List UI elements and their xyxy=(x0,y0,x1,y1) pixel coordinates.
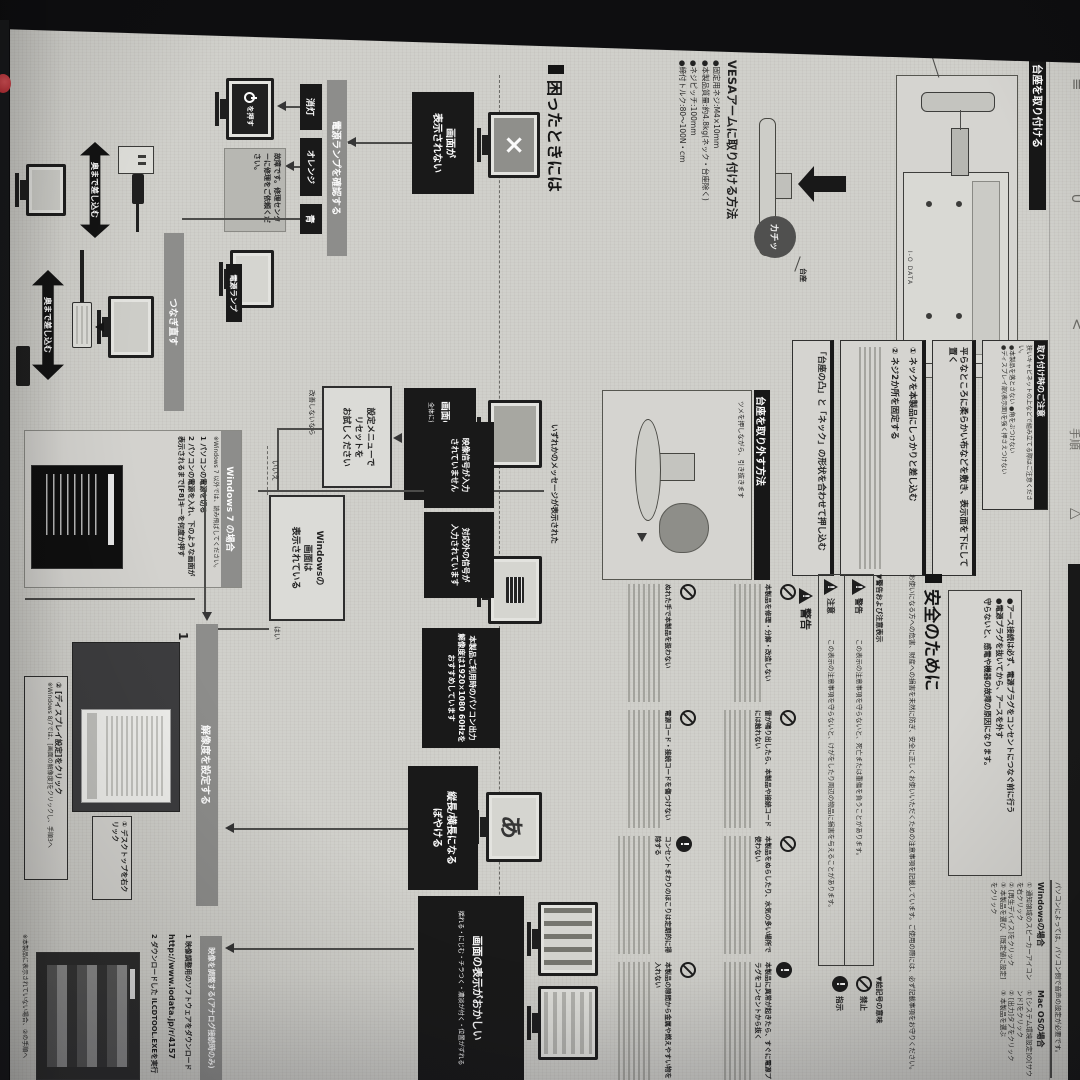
warning-item: 本製品の隙間から金属や燃えやすい物を入れない xyxy=(600,962,696,1080)
no-dashed-line xyxy=(267,446,268,495)
color-problem-monitor-icon xyxy=(488,400,542,468)
warning-item: 本製品をぬらしたり、水気の多い場所で使わない xyxy=(706,836,796,954)
remove-neck xyxy=(657,453,695,481)
attach-caution-intro: 狭いキャビネットの上などで組み立てる際はご注意ください。 xyxy=(1016,341,1034,509)
desktop-screenshot xyxy=(72,642,180,812)
audio-windows-column: Windowsの場合 ① 通知領域のスピーカーアイコンを右クリック ② [再生デ… xyxy=(989,882,1046,984)
wavy-monitor-icon xyxy=(538,902,598,976)
warning-item: 電源コード・接続コードを傷つけない xyxy=(600,710,696,828)
attach-step-1: 平らなところに柔らかい布などを敷き、表示面を下にして置く xyxy=(932,340,976,576)
no-display-monitor-icon: × xyxy=(488,112,540,178)
display-odd-title: 画面の表示がおかしい xyxy=(470,936,485,1041)
caution-word: 注意 xyxy=(826,598,837,614)
attach-step-3: ② ネジ2か所を固定する xyxy=(887,347,899,569)
press-label: を押す xyxy=(245,106,255,127)
vesa-neck-stub xyxy=(774,173,792,199)
monitor-rear: I-O DATA xyxy=(903,172,1009,364)
warning-triangle-icon xyxy=(852,579,866,595)
power-cable-figure: 奥まで差し込む xyxy=(12,140,158,240)
rear-monitor-small-icon xyxy=(26,164,66,216)
flow-start-box: 画面が 表示されない xyxy=(412,92,474,194)
lamp-orange-box: オレンジ xyxy=(300,138,322,196)
hand-icon xyxy=(659,503,709,553)
rear-monitor-small-icon xyxy=(108,296,154,358)
aspect-glyph: あ xyxy=(492,798,536,856)
arrow-shaft xyxy=(812,176,846,192)
photographed-manual-page: ≡ ∪ < 手順 △ 台座を取り付ける I-O DATA ネック 取り付け時のご… xyxy=(0,0,1080,1080)
vesa-header: VESAアームに取り付ける方法 xyxy=(724,60,740,300)
outlet-icon xyxy=(118,146,154,174)
attach-step-2-3: ① ネックを本製品にしっかりと差し込む ② ネジ2か所を固定する xyxy=(840,340,926,576)
step-number: 1 xyxy=(176,632,190,640)
warning-section-label: 警告 xyxy=(798,588,814,630)
attach-step-4: 「台座の凸」と「ネック」の形状を合わせて押し込む xyxy=(792,340,834,576)
audio-note: パソコンによっては、パソコン側で音声の設定が必要です。 xyxy=(1054,882,1064,1078)
no-signal-box: 映像信号が入力 されていません xyxy=(424,422,494,508)
aspect-monitor-icon: あ xyxy=(486,792,542,862)
header-square-icon xyxy=(548,65,565,74)
windows7-step1: 1 パソコンの電源を切る xyxy=(197,431,209,587)
audio-section-bar xyxy=(1068,564,1080,1080)
warning-section-word: 警告 xyxy=(798,608,814,630)
yes-label: はい xyxy=(272,626,282,640)
edge-angle-icon: < xyxy=(1068,318,1080,331)
power-icon xyxy=(245,92,256,103)
boot-menu-screenshot xyxy=(31,465,123,569)
adjust-step2: 2 ダウンロードした ILCDTOOL.EXEを実行 xyxy=(150,934,160,1080)
warning-item: ! 本製品に異常が起きたら、すぐに電源プラグをコンセントから抜く xyxy=(706,962,796,1080)
windows-shown-box: Windowsの 画面は 表示されている xyxy=(269,495,345,621)
adjust-note: ※本製品に表示されていない場合、②の手順へ xyxy=(21,934,30,1080)
warning-triangle-icon xyxy=(799,588,813,604)
edge-list-icon: ≡ xyxy=(1068,78,1080,91)
symbol-must-row: ! 指示 xyxy=(832,976,848,1011)
symbols-title: ▼絵記号の意味 xyxy=(874,976,884,1023)
manual-page: ≡ ∪ < 手順 △ 台座を取り付ける I-O DATA ネック 取り付け時のご… xyxy=(10,28,1080,1080)
striped-monitor-icon xyxy=(538,986,598,1060)
symbol-prohibit-row: 禁止 xyxy=(856,976,872,1011)
troubleshoot-header: 困ったときには xyxy=(544,65,568,192)
adjust-step1: 1 映像調整用のソフトウェアをダウンロード xyxy=(184,934,194,1080)
reconnect-bar: つなぎ直す xyxy=(164,233,184,411)
arrow-head-icon xyxy=(798,166,814,202)
stand-attach-header: 台座を取り付ける xyxy=(1029,58,1046,210)
lamp-callout: 電源ランプ xyxy=(226,264,242,322)
hdmi-plug-icon xyxy=(16,346,30,386)
display-odd-sub: 揺れる・にじむ・チラつく・濃淡が付く・位置がずれる xyxy=(457,911,466,1066)
plug-icon xyxy=(132,174,144,204)
neck-part xyxy=(951,128,969,176)
click-sound-bubble: カチッ xyxy=(754,216,796,258)
remove-note: ツメを押しながら、引き抜きます xyxy=(737,401,745,505)
windows7-section: Windows 7 の場合 ※Windows 7 以外では、読み飛ばしてください… xyxy=(24,430,242,588)
safety-legend-title: ▼警告および注意表示 xyxy=(874,574,884,642)
audio-mac-steps: ① [システム環境設定]の[サウンド]をクリック ② [出力]タブをクリック ③… xyxy=(998,990,1033,1080)
safety-header-label: 安全のために xyxy=(921,589,946,691)
caution-triangle-icon xyxy=(824,579,838,595)
lamp-off-box: 消灯 xyxy=(300,84,322,130)
lamp-blue-box: 青 xyxy=(300,204,322,234)
display-odd-box: 画面の表示がおかしい 揺れる・にじむ・チラつく・濃淡が付く・位置がずれる xyxy=(418,896,524,1080)
stand-attach-figure: I-O DATA xyxy=(896,75,1018,378)
fine-print-lines xyxy=(859,347,881,569)
audio-windows-steps: ① 通知領域のスピーカーアイコンを右クリック ② [再生デバイス]をクリック ③… xyxy=(989,882,1033,984)
video-cable-figure: 奥まで差し込む xyxy=(12,250,158,408)
warning-item: 本製品を修理・分解・改造しない xyxy=(706,584,796,702)
edge-warning-icon: △ xyxy=(1068,508,1080,520)
vesa-specs: ●固定用ネジ:M4×10mm ●本製品質量:約4.8kg(ネック・台座除く) ●… xyxy=(677,60,722,310)
no-label: いいえ xyxy=(270,460,280,481)
attach-caution-box: 取り付け時のご注意 狭いキャビネットの上などで組み立てる際はご注意ください。 ●… xyxy=(982,340,1048,510)
safety-legend-table: 警告 この表示の注意事項を守らないと、死亡または重傷を負うことがあります。 注意… xyxy=(818,574,874,966)
troubleshoot-header-label: 困ったときには xyxy=(544,80,568,192)
audio-mac-column: Mac OSの場合 ① [システム環境設定]の[サウンド]をクリック ② [出力… xyxy=(998,990,1046,1080)
aspect-problem-box: 縦長/横長になる ぼやける xyxy=(408,766,478,890)
attach-caution-title: 取り付け時のご注意 xyxy=(1034,341,1047,509)
attach-step-2: ① ネックを本製品にしっかりと差し込む xyxy=(905,347,917,569)
brand-logo: I-O DATA xyxy=(906,173,913,363)
windows7-note: ※Windows 7 以外では、読み飛ばしてください。 xyxy=(209,431,221,587)
adjust-video-bar: 映像を調整する(アナログ接続時のみ) xyxy=(200,936,222,1080)
audio-windows-title: Windowsの場合 xyxy=(1035,882,1046,984)
flow-trunk-line xyxy=(258,490,544,492)
warning-word: 警告 xyxy=(854,598,865,614)
stand-remove-figure: ツメを押しながら、引き抜きます xyxy=(602,390,752,580)
adjust-url: http://www.iodata.jp/r/4157 xyxy=(167,934,176,1080)
remove-base xyxy=(635,419,661,521)
set-resolution-bar: 解像度を設定する xyxy=(196,624,218,906)
warning-desc: この表示の注意事項を守らないと、死亡または重傷を負うことがあります。 xyxy=(855,635,864,965)
windows7-title: Windows 7 の場合 xyxy=(221,431,241,587)
warning-item: ぬれた手で本製品を扱わない xyxy=(600,584,696,702)
power-button-monitor-icon: を押す xyxy=(226,78,274,140)
warning-item: 雷が鳴り出したら、本製品や接続コードには触れない xyxy=(706,710,796,828)
message-shown-label: いずれかのメッセージが表示された xyxy=(549,424,560,664)
edge-step-label: 手順 xyxy=(1067,428,1080,450)
callout-display-settings: ② [ディスプレイ設定]をクリック ※Windows 8/7では、[画面の解像度… xyxy=(24,676,68,880)
stand-remove-header: 台座を取り外す方法 xyxy=(754,390,770,580)
safety-intro: お使いになる方への危害、財産への損害を未然に防ぎ、安全に正しくお使いいただくため… xyxy=(907,574,916,1074)
push-in-ribbon: 奥まで差し込む xyxy=(80,142,110,238)
vesa-figure: カチッ 台座 xyxy=(744,88,848,308)
mandatory-icon: ! xyxy=(832,976,848,992)
message-monitor-icon xyxy=(488,556,542,624)
base-part xyxy=(921,92,995,112)
safety-header: 安全のために xyxy=(921,574,946,691)
windows7-step2: 2 パソコンの電源を入れ、下のような画面が表示されるまで[F8]キーを何度か押す xyxy=(174,431,197,587)
mandatory-label: 指示 xyxy=(835,996,846,1011)
dvi-connector-icon xyxy=(72,302,92,348)
prohibit-icon xyxy=(856,976,872,992)
prohibit-label: 禁止 xyxy=(859,996,870,1011)
caution-desc: この表示の注意事項を守らないと、けがをしたり周辺の物品に損害を与えることがありま… xyxy=(827,635,836,965)
reset-menu-box: 設定メニューで リセットを お試しください xyxy=(322,386,392,488)
daiza-label: 台座 xyxy=(798,268,808,282)
out-of-range-box: 対応外の信号が 入力されています xyxy=(424,512,494,598)
audio-mac-title: Mac OSの場合 xyxy=(1035,990,1046,1080)
warning-items-grid: 本製品を修理・分解・改造しない 雷が鳴り出したら、本製品や接続コードには触れない… xyxy=(600,584,796,1080)
callout-right-click: ① デスクトップを右クリック xyxy=(92,816,132,900)
check-lamp-bar: 電源ランプを確認する xyxy=(327,80,347,256)
edge-plug-icon: ∪ xyxy=(1068,193,1080,204)
recommend-resolution-box: 本製品ご利用時のパソコン出力解像度は1920×1080 60Hzをおすすめしてい… xyxy=(422,628,500,748)
photo-left-edge xyxy=(0,20,9,1080)
earth-warning-box: ●アース接続は必ず、電源プラグをコンセントにつなぐ前に行う ●電源プラグを抜いて… xyxy=(948,590,1022,876)
attach-caution-bullets: ●本製品を落とさない ●角をぶつけない ●ディスプレイ部(表示面)を強く押さえつ… xyxy=(998,341,1016,509)
adjust-tool-screenshot xyxy=(36,952,140,1080)
warning-item: ! コンセントまわりのほこりは定期的に掃除する xyxy=(600,836,696,954)
push-in-ribbon: 奥まで差し込む xyxy=(32,270,64,380)
callout-display-settings-label: ② [ディスプレイ設定]をクリック xyxy=(53,682,64,874)
header-square-icon xyxy=(925,574,943,583)
callout-display-settings-note: ※Windows 8/7では、[画面の解像度]をクリックし、手順3へ xyxy=(45,682,53,874)
